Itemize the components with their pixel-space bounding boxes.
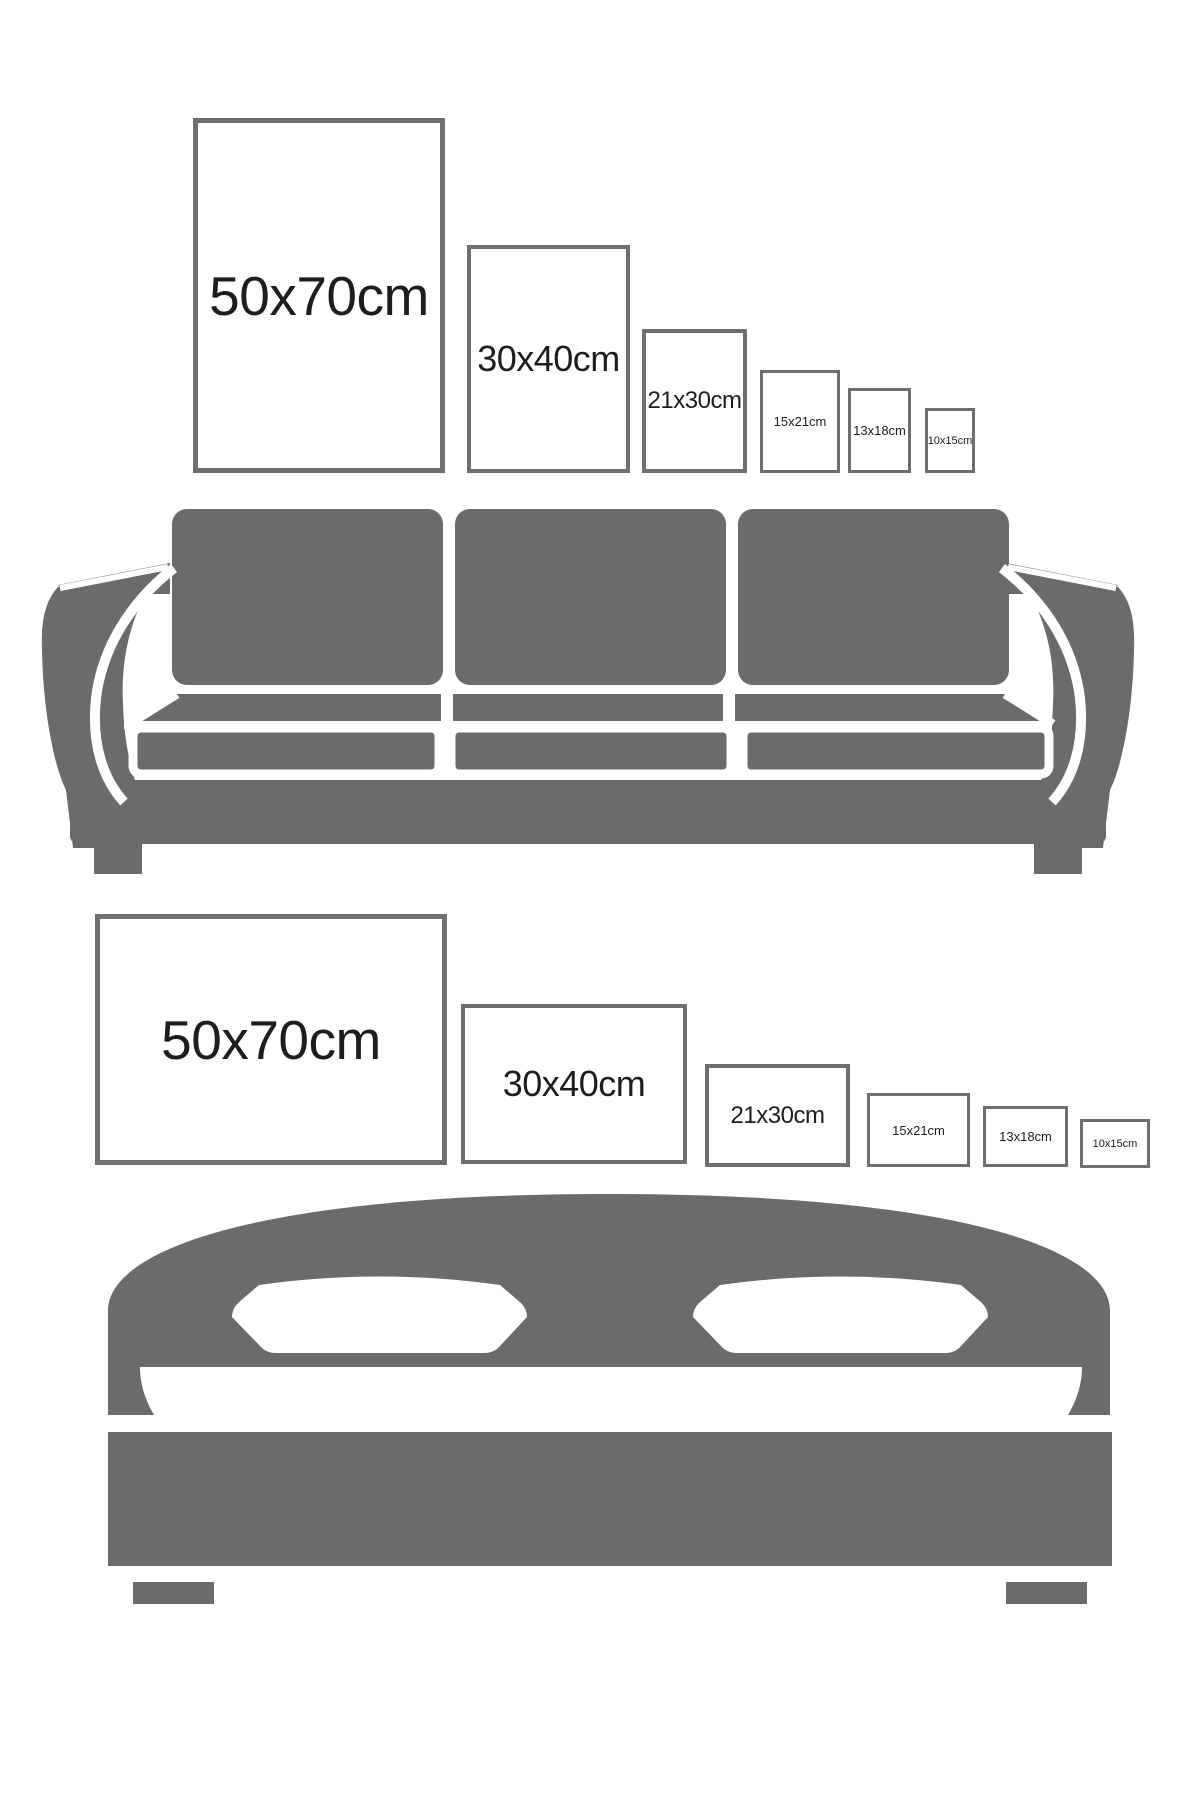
size-guide-canvas: 50x70cm 30x40cm 21x30cm 15x21cm 13x18cm … (0, 0, 1200, 1800)
frame-landscape-15x21: 15x21cm (867, 1093, 970, 1167)
sofa-illustration (28, 492, 1148, 877)
frame-label: 15x21cm (892, 1123, 945, 1138)
frame-portrait-30x40: 30x40cm (467, 245, 630, 473)
frame-portrait-10x15: 10x15cm (925, 408, 975, 473)
bed-illustration (104, 1186, 1114, 1616)
frame-portrait-13x18: 13x18cm (848, 388, 911, 473)
sofa-icon (28, 492, 1148, 877)
bed-icon (104, 1186, 1114, 1616)
frame-label: 30x40cm (477, 338, 620, 380)
frame-landscape-13x18: 13x18cm (983, 1106, 1068, 1167)
frame-label: 13x18cm (853, 423, 906, 438)
frame-label: 10x15cm (1093, 1138, 1138, 1150)
frame-landscape-10x15: 10x15cm (1080, 1119, 1150, 1168)
frame-label: 50x70cm (209, 264, 429, 328)
frame-label: 21x30cm (731, 1102, 825, 1130)
frame-label: 21x30cm (648, 387, 742, 415)
frame-label: 10x15cm (928, 435, 973, 447)
frame-label: 15x21cm (774, 414, 827, 429)
frame-portrait-15x21: 15x21cm (760, 370, 840, 473)
frame-label: 50x70cm (161, 1008, 381, 1072)
frame-landscape-50x70: 50x70cm (95, 914, 447, 1165)
frame-landscape-30x40: 30x40cm (461, 1004, 687, 1164)
frame-portrait-50x70: 50x70cm (193, 118, 445, 473)
frame-portrait-21x30: 21x30cm (642, 329, 747, 473)
frame-landscape-21x30: 21x30cm (705, 1064, 850, 1167)
frame-label: 13x18cm (999, 1129, 1052, 1144)
frame-label: 30x40cm (503, 1063, 646, 1105)
